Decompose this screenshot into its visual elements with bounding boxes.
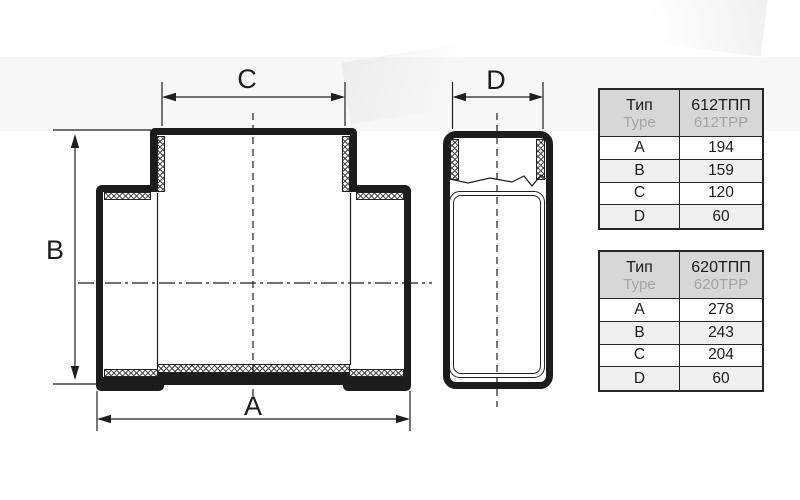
dim-label-a: A <box>233 393 273 420</box>
dim-label-c: C <box>227 66 267 93</box>
hatch-bottom-right <box>349 369 404 377</box>
table-header-row: Тип Type 620ТПП 620TPP <box>600 252 762 299</box>
row-label: B <box>600 322 680 344</box>
front-view-body-outline <box>96 185 411 385</box>
table-row: A 278 <box>600 299 762 322</box>
row-label: C <box>600 345 680 367</box>
hatch-shoulder-right <box>356 192 404 200</box>
front-view-left-foot <box>96 377 164 391</box>
row-value: 120 <box>680 183 762 205</box>
row-label: B <box>600 160 680 182</box>
row-label: A <box>600 137 680 159</box>
row-value: 159 <box>680 160 762 182</box>
row-value: 243 <box>680 322 762 344</box>
hatch-branch-left-wall <box>157 136 165 192</box>
spec-table-612: Тип Type 612ТПП 612TPP A 194 B 159 C 120… <box>598 88 764 230</box>
table-header-type: Тип Type <box>600 90 680 136</box>
table-row: C 120 <box>600 183 762 206</box>
row-label: D <box>600 367 680 390</box>
hatch-branch-right-wall <box>342 136 350 192</box>
hatch-side-left-wall <box>450 139 459 180</box>
technical-drawing-page: C D A B Тип Type 612ТПП 612TPP A 194 B 1… <box>0 0 800 500</box>
row-value: 204 <box>680 345 762 367</box>
table-row: C 204 <box>600 345 762 368</box>
table-row: A 194 <box>600 137 762 160</box>
hatch-bottom-center <box>157 364 350 373</box>
header-model-en: 612TPP <box>694 115 748 131</box>
table-header-row: Тип Type 612ТПП 612TPP <box>600 90 762 137</box>
table-header-type: Тип Type <box>600 252 680 298</box>
hatch-side-right-wall <box>536 139 545 180</box>
header-type-en: Type <box>623 115 656 131</box>
row-label: D <box>600 205 680 228</box>
spec-table-620: Тип Type 620ТПП 620TPP A 278 B 243 C 204… <box>598 250 764 392</box>
table-row: B 159 <box>600 160 762 183</box>
header-type-ru: Тип <box>626 258 653 277</box>
hatch-bottom-left <box>104 369 158 377</box>
table-row: D 60 <box>600 367 762 390</box>
table-header-model: 620ТПП 620TPP <box>680 252 762 298</box>
row-label: C <box>600 183 680 205</box>
dim-label-b: B <box>35 237 75 264</box>
header-type-ru: Тип <box>626 96 653 115</box>
row-value: 60 <box>680 367 762 390</box>
row-value: 60 <box>680 205 762 228</box>
header-model-en: 620TPP <box>694 277 748 293</box>
header-type-en: Type <box>623 277 656 293</box>
header-model-ru: 612ТПП <box>691 96 750 115</box>
dim-label-d: D <box>476 67 516 94</box>
table-row: B 243 <box>600 322 762 345</box>
front-view-branch-outline <box>150 128 357 192</box>
side-view-inner-profile-inner-line <box>453 195 541 374</box>
table-header-model: 612ТПП 612TPP <box>680 90 762 136</box>
front-view-right-foot <box>343 377 411 391</box>
row-value: 278 <box>680 299 762 321</box>
background-watermark-shape <box>552 0 768 57</box>
table-row: D 60 <box>600 205 762 228</box>
row-label: A <box>600 299 680 321</box>
header-model-ru: 620ТПП <box>691 258 750 277</box>
hatch-shoulder-left <box>104 192 151 200</box>
row-value: 194 <box>680 137 762 159</box>
